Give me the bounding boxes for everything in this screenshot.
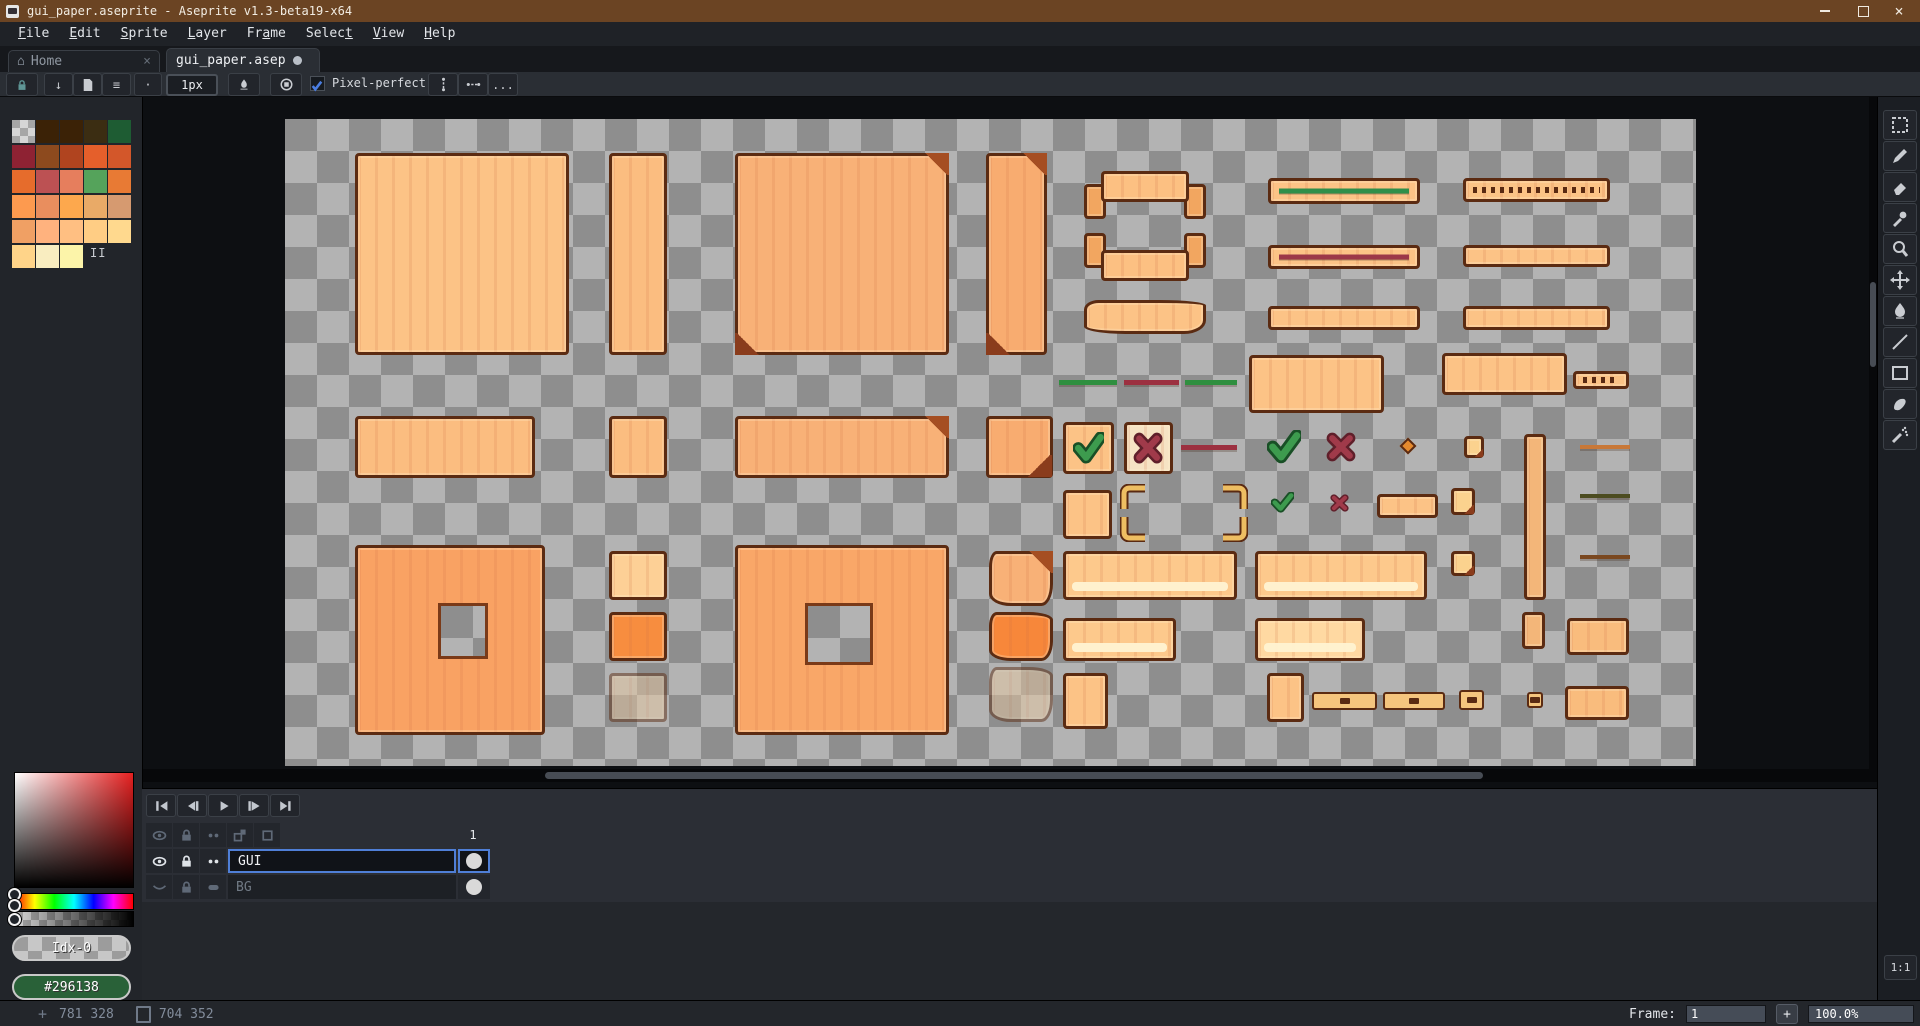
playback-go-last-button[interactable] — [270, 794, 300, 817]
palette-swatch[interactable] — [12, 195, 35, 218]
sprite-meter-line-green-2 — [1185, 380, 1237, 385]
symmetry-horizontal-icon — [466, 77, 481, 92]
tool-paint-bucket[interactable] — [1883, 296, 1917, 326]
fold-corner — [735, 333, 761, 355]
lock-button[interactable] — [6, 73, 38, 96]
playback-next-frame-button[interactable] — [239, 794, 269, 817]
eye-open-icon — [151, 853, 168, 870]
sprite-size-value: 704 352 — [159, 1007, 214, 1022]
fold-corner — [923, 153, 949, 175]
symmetry-horizontal-button[interactable] — [458, 73, 488, 96]
sprite-paper-panel-large — [355, 153, 569, 355]
menu-item-edit[interactable]: Edit — [59, 22, 110, 46]
fold-corner — [923, 416, 949, 438]
sprite-frame-corner-bl — [1120, 516, 1146, 542]
cel-icon — [259, 827, 276, 844]
sprite-slice-panel-textured — [735, 545, 949, 735]
frame-input[interactable] — [1686, 1005, 1766, 1023]
sprite-meter-line-green-1 — [1059, 380, 1117, 385]
home-icon: ⌂ — [17, 54, 25, 69]
sprite-button-long-2 — [1255, 551, 1427, 600]
layer-cel-gui[interactable] — [458, 849, 490, 873]
line-icon — [1890, 332, 1910, 352]
cel-dot — [466, 879, 482, 895]
fold-corner — [1474, 449, 1483, 457]
sprite-progressbar-green — [1268, 178, 1420, 204]
sprite-frame-corner-br — [1222, 516, 1248, 542]
symmetry-vertical-button[interactable] — [428, 73, 458, 96]
sprite-paper-torn-orange — [989, 612, 1053, 661]
sprite-divider-brown — [1580, 555, 1630, 559]
sprite-icon-diamond — [1400, 438, 1417, 455]
button-shine — [1072, 643, 1167, 652]
alpha-slider[interactable] — [14, 911, 134, 927]
dynamics-button[interactable] — [270, 73, 302, 96]
brush-size-value: 1px — [181, 78, 203, 92]
sprite-tab-bar-small — [1377, 494, 1438, 518]
timeline-header-eye[interactable] — [146, 823, 172, 847]
bar-fill — [1583, 377, 1619, 383]
menu-item-layer[interactable]: Layer — [178, 22, 237, 46]
menu-item-sprite[interactable]: Sprite — [111, 22, 178, 46]
go-first-icon — [153, 798, 169, 814]
menu-item-select[interactable]: Select — [296, 22, 363, 46]
palette-swatch[interactable] — [84, 145, 107, 168]
frame-number-header[interactable]: 1 — [457, 823, 489, 847]
sprite-paper-chip-orange — [609, 612, 667, 661]
spray-icon — [1890, 425, 1910, 445]
sprite-slider-chip-1 — [1459, 690, 1484, 710]
tool-line[interactable] — [1883, 327, 1917, 357]
sprite-meter-line-red — [1124, 380, 1179, 385]
palette-swatch[interactable] — [108, 145, 131, 168]
palette-swatch[interactable] — [36, 145, 59, 168]
palette-swatch[interactable] — [108, 195, 131, 218]
sprite-progressbar-empty-2 — [1463, 245, 1610, 267]
layer-bg-capsule[interactable] — [200, 875, 226, 899]
sprite-paper-panel-folded — [735, 153, 949, 355]
sprite-divider-orange — [1580, 445, 1630, 449]
menu-item-file[interactable]: File — [8, 22, 59, 46]
dots-icon — [205, 853, 222, 870]
layer-name-gui[interactable]: GUI — [228, 849, 456, 873]
maximize-button[interactable] — [1846, 0, 1880, 22]
zoom-level-field[interactable]: 100.0% — [1808, 1005, 1914, 1023]
palette-swatch[interactable] — [60, 245, 83, 268]
lock-icon — [178, 853, 195, 870]
lock-icon — [178, 879, 195, 896]
palette-index-value: Idx-0 — [52, 941, 91, 956]
tab-document[interactable]: gui_paper.asep — [166, 48, 320, 72]
menu-item-frame[interactable]: Frame — [237, 22, 296, 46]
palette-panel: II Idx-0 #296138 — [0, 97, 143, 1000]
sprite-ribbon-tabs-up — [1084, 233, 1206, 281]
prev-frame-icon — [184, 798, 200, 814]
hex-color-button[interactable]: #296138 — [12, 974, 131, 1000]
aseprite-app-icon — [6, 5, 19, 18]
layer-cel-bg[interactable] — [458, 875, 490, 899]
palette-swatch[interactable] — [84, 170, 107, 193]
drop-pixels-button[interactable]: ↓ — [44, 73, 73, 96]
sprite-icon-cross-small — [1330, 494, 1349, 512]
button-shine — [1264, 643, 1356, 652]
sprite-slice-panel-orange — [355, 545, 545, 735]
palette-swatch[interactable] — [12, 245, 35, 268]
tool-contour[interactable] — [1883, 389, 1917, 419]
tool-bar: 1:1 — [1877, 97, 1920, 1026]
tool-pencil[interactable] — [1883, 141, 1917, 171]
tab-home[interactable]: ⌂ Home × — [8, 50, 160, 72]
horizontal-scrollbar[interactable] — [142, 769, 1877, 782]
palette-swatch[interactable] — [12, 170, 35, 193]
sprite-button-medium-light — [1255, 618, 1365, 661]
sprite-button-confirm — [1063, 422, 1114, 474]
sprite-button-cancel — [1124, 422, 1173, 474]
palette-swatch[interactable] — [60, 145, 83, 168]
pixel-ratio-value: 1:1 — [1891, 961, 1911, 974]
cursor-position-icon: + — [38, 1005, 47, 1023]
timeline-header-cel[interactable] — [254, 823, 280, 847]
tool-rectangle[interactable] — [1883, 358, 1917, 388]
zoom-icon — [1890, 239, 1910, 259]
sprite-paper-chip-light — [609, 551, 667, 600]
sprite-divider-dark — [1580, 494, 1630, 498]
horizontal-scrollbar-thumb[interactable] — [545, 772, 1483, 779]
cursor-position-value: 781 328 — [59, 1007, 114, 1022]
window-titlebar[interactable]: gui_paper.aseprite - Aseprite v1.3-beta1… — [0, 0, 1920, 22]
cel-dot — [466, 853, 482, 869]
layer-bg-eye-closed[interactable] — [146, 875, 172, 899]
tab-home-label: Home — [31, 54, 62, 69]
status-bar: + 781 328 704 352 Frame: + 100.0% — [0, 1000, 1920, 1026]
ribbon-band — [1101, 171, 1189, 202]
palette-swatch[interactable] — [12, 220, 35, 243]
sprite-paper-strip-tall — [609, 153, 667, 355]
frame-label: Frame: — [1629, 1007, 1676, 1022]
fold-corner — [1463, 566, 1474, 575]
sprite-paper-chip-wide — [1567, 618, 1629, 655]
fold-corner — [1027, 551, 1053, 573]
palette-swatch[interactable] — [36, 120, 59, 143]
palette-swatch[interactable] — [60, 220, 83, 243]
capsule-icon — [205, 879, 222, 896]
eyedropper-icon — [1890, 208, 1910, 228]
pixel-ratio-button[interactable]: 1:1 — [1884, 955, 1917, 980]
palette-swatch[interactable] — [84, 120, 107, 143]
tool-spray[interactable] — [1883, 420, 1917, 450]
palette-swatch[interactable] — [84, 220, 107, 243]
lock-icon — [15, 78, 29, 92]
check-glyph — [1073, 432, 1105, 464]
bar-fill — [1279, 189, 1409, 194]
tab-document-label: gui_paper.asep — [176, 53, 286, 68]
palette-swatch[interactable] — [60, 195, 83, 218]
sprite-slider-chip-2 — [1527, 692, 1543, 708]
playback-go-first-button[interactable] — [146, 794, 176, 817]
sprite-paper-torn-faded — [989, 667, 1053, 722]
layer-gui-eye-open[interactable] — [146, 849, 172, 873]
tool-zoom[interactable] — [1883, 234, 1917, 264]
menu-item-help[interactable]: Help — [414, 22, 465, 46]
sprite-icon-check-small — [1271, 492, 1294, 513]
playback-play-button[interactable] — [208, 794, 238, 817]
palette-index-button[interactable]: Idx-0 — [12, 935, 131, 961]
sprite-ribbon-tabs-down — [1084, 171, 1206, 219]
cross-glyph — [1133, 432, 1163, 464]
window-title: gui_paper.aseprite - Aseprite v1.3-beta1… — [27, 4, 352, 18]
new-layer-button[interactable] — [73, 73, 102, 96]
button-shine — [1072, 582, 1228, 591]
symmetry-vertical-icon — [436, 77, 451, 92]
palette-swatch[interactable] — [12, 120, 35, 143]
dynamics-icon — [279, 77, 294, 92]
fold-corner — [1463, 505, 1474, 514]
sprite-icon-check-large — [1267, 430, 1301, 464]
layer-name-bg[interactable]: BG — [228, 875, 456, 899]
move-icon — [1890, 270, 1910, 290]
color-picker-gradient[interactable] — [14, 772, 134, 888]
palette-swatch[interactable] — [108, 170, 131, 193]
zoom-level-value: 100.0% — [1815, 1007, 1858, 1021]
palette-index-label: II — [90, 246, 106, 260]
palette-swatch[interactable] — [36, 245, 59, 268]
sprite-slider-track-1 — [1312, 692, 1377, 710]
pixel-perfect-checkbox[interactable] — [310, 76, 325, 91]
next-frame-icon — [246, 798, 262, 814]
menu-bar: FileEditSpriteLayerFrameSelectViewHelp — [0, 22, 1920, 46]
tab-bar: ⌂ Home × gui_paper.asep — [0, 46, 1920, 72]
context-toolbar: ↓ ≡ · 1px Pixel-perfect ... — [0, 72, 1920, 97]
sprite-progressbar-empty — [1268, 306, 1420, 330]
minimize-button[interactable] — [1808, 0, 1842, 22]
sprite-banner-plain — [1084, 300, 1206, 334]
check-icon — [311, 80, 323, 92]
sprite-paper-header-folded — [735, 416, 949, 478]
timeline-header-dots[interactable] — [200, 823, 226, 847]
sprite-sticky-note-2 — [1451, 488, 1475, 515]
sprite-meter-line-red-2 — [1181, 445, 1237, 450]
tool-move[interactable] — [1883, 265, 1917, 295]
timeline-header-lock[interactable] — [173, 823, 199, 847]
ribbon-band — [1101, 250, 1189, 281]
bar-fill — [1279, 255, 1409, 260]
chip-dash — [1530, 697, 1540, 703]
contour-icon — [1890, 394, 1910, 414]
sprite-paper-chip-faded — [609, 673, 667, 722]
slice-hole — [438, 603, 488, 659]
bar-fill — [1473, 187, 1600, 193]
layer-gui-dots[interactable] — [200, 849, 226, 873]
sprite-paper-square-3 — [1267, 673, 1304, 722]
palette-swatch[interactable] — [36, 220, 59, 243]
brush-size-field[interactable]: 1px — [166, 74, 218, 96]
sprite-paper-torn — [989, 551, 1053, 606]
sprite-scroll-strip-tall — [1524, 434, 1546, 600]
sprite-sticky-note-3 — [1451, 551, 1475, 576]
eraser-icon — [1890, 177, 1910, 197]
vertical-scrollbar[interactable] — [1869, 97, 1877, 769]
sprite-icon-cross-large — [1326, 432, 1356, 462]
frame-controls: Frame: + 100.0% — [1629, 1001, 1914, 1026]
unsaved-dot-icon — [293, 56, 302, 65]
palette-swatch[interactable] — [60, 120, 83, 143]
more-options-label: ... — [492, 78, 514, 92]
sprite-paper-small — [609, 416, 667, 478]
sprite-frame-corner-tr — [1222, 484, 1248, 510]
tool-eyedropper[interactable] — [1883, 203, 1917, 233]
palette-swatch[interactable] — [108, 120, 131, 143]
palette-swatch[interactable] — [108, 220, 131, 243]
brush-dot-button[interactable]: · — [134, 73, 162, 96]
pixel-perfect-label: Pixel-perfect — [332, 76, 426, 90]
sprite-size-icon — [136, 1006, 151, 1023]
hue-slider[interactable] — [14, 893, 134, 910]
sprite-sticky-note-1 — [1464, 436, 1484, 458]
slice-hole — [805, 603, 873, 665]
eye-icon — [151, 827, 168, 844]
fold-corner — [1021, 153, 1047, 175]
sprite-minibar-ticks — [1573, 371, 1629, 389]
chip-dash — [1409, 698, 1419, 704]
fold-corner — [1026, 455, 1052, 477]
rectangular-marquee-icon — [1890, 115, 1910, 135]
onion-icon — [232, 827, 249, 844]
paint-bucket-icon — [1890, 301, 1910, 321]
sprite-paper-label — [1249, 355, 1384, 413]
play-icon — [215, 798, 231, 814]
document-icon — [82, 78, 94, 92]
sprite-paper-small-folded — [986, 416, 1053, 478]
aseprite-window: gui_paper.aseprite - Aseprite v1.3-beta1… — [0, 0, 1920, 1026]
sprite-paper-strip-folded — [986, 153, 1047, 355]
ink-button[interactable] — [228, 73, 260, 96]
rectangle-icon — [1890, 363, 1910, 383]
chip-dash — [1340, 698, 1350, 704]
tool-eraser[interactable] — [1883, 172, 1917, 202]
close-button[interactable]: × — [1882, 0, 1916, 22]
pencil-icon — [1890, 146, 1910, 166]
palette-swatch[interactable] — [36, 195, 59, 218]
more-options-button[interactable]: ... — [488, 73, 518, 96]
sprite-canvas[interactable] — [285, 119, 1696, 766]
sprite-paper-chip-3 — [1565, 686, 1629, 720]
palette-swatch[interactable] — [84, 195, 107, 218]
sprite-button-medium — [1063, 618, 1176, 661]
sprite-paper-header — [355, 416, 535, 478]
timeline-header-onion[interactable] — [227, 823, 253, 847]
palette-swatch[interactable] — [36, 170, 59, 193]
options-button[interactable]: ≡ — [102, 73, 131, 96]
ink-icon — [237, 78, 251, 92]
dots-icon — [205, 827, 222, 844]
alpha-marker[interactable] — [8, 913, 21, 926]
tool-rectangular-marquee[interactable] — [1883, 110, 1917, 140]
sprite-scroll-thumb-small — [1522, 612, 1545, 649]
go-last-icon — [277, 798, 293, 814]
chip-dash — [1467, 697, 1477, 703]
eye-closed-icon — [151, 879, 168, 896]
hue-marker-2[interactable] — [8, 899, 21, 912]
sprite-frame-corner-tl — [1120, 484, 1146, 510]
vertical-scrollbar-thumb[interactable] — [1870, 282, 1876, 367]
fold-corner — [986, 333, 1012, 355]
layer-gui-lock[interactable] — [173, 849, 199, 873]
add-frame-label: + — [1783, 1007, 1791, 1022]
sprite-paper-square-small — [1063, 490, 1112, 539]
add-frame-button[interactable]: + — [1776, 1004, 1798, 1024]
sprite-button-long — [1063, 551, 1237, 600]
close-tab-icon[interactable]: × — [143, 54, 151, 69]
layer-bg-lock[interactable] — [173, 875, 199, 899]
sprite-paper-label-2 — [1442, 353, 1567, 395]
sprite-progressbar-ticks — [1463, 178, 1610, 202]
lock-icon — [178, 827, 195, 844]
sprite-progressbar-empty-3 — [1463, 306, 1610, 330]
playback-prev-frame-button[interactable] — [177, 794, 207, 817]
palette-swatch[interactable] — [12, 145, 35, 168]
palette-swatch[interactable] — [60, 170, 83, 193]
sprite-progressbar-red — [1268, 245, 1420, 269]
button-shine — [1264, 582, 1418, 591]
timeline-panel: 1 GUIBG — [142, 788, 1877, 903]
timeline-spacer — [142, 902, 1877, 1000]
menu-item-view[interactable]: View — [363, 22, 414, 46]
sprite-slider-track-2 — [1383, 692, 1445, 710]
sprite-paper-square-2 — [1063, 673, 1108, 729]
hex-color-value: #296138 — [44, 980, 99, 995]
